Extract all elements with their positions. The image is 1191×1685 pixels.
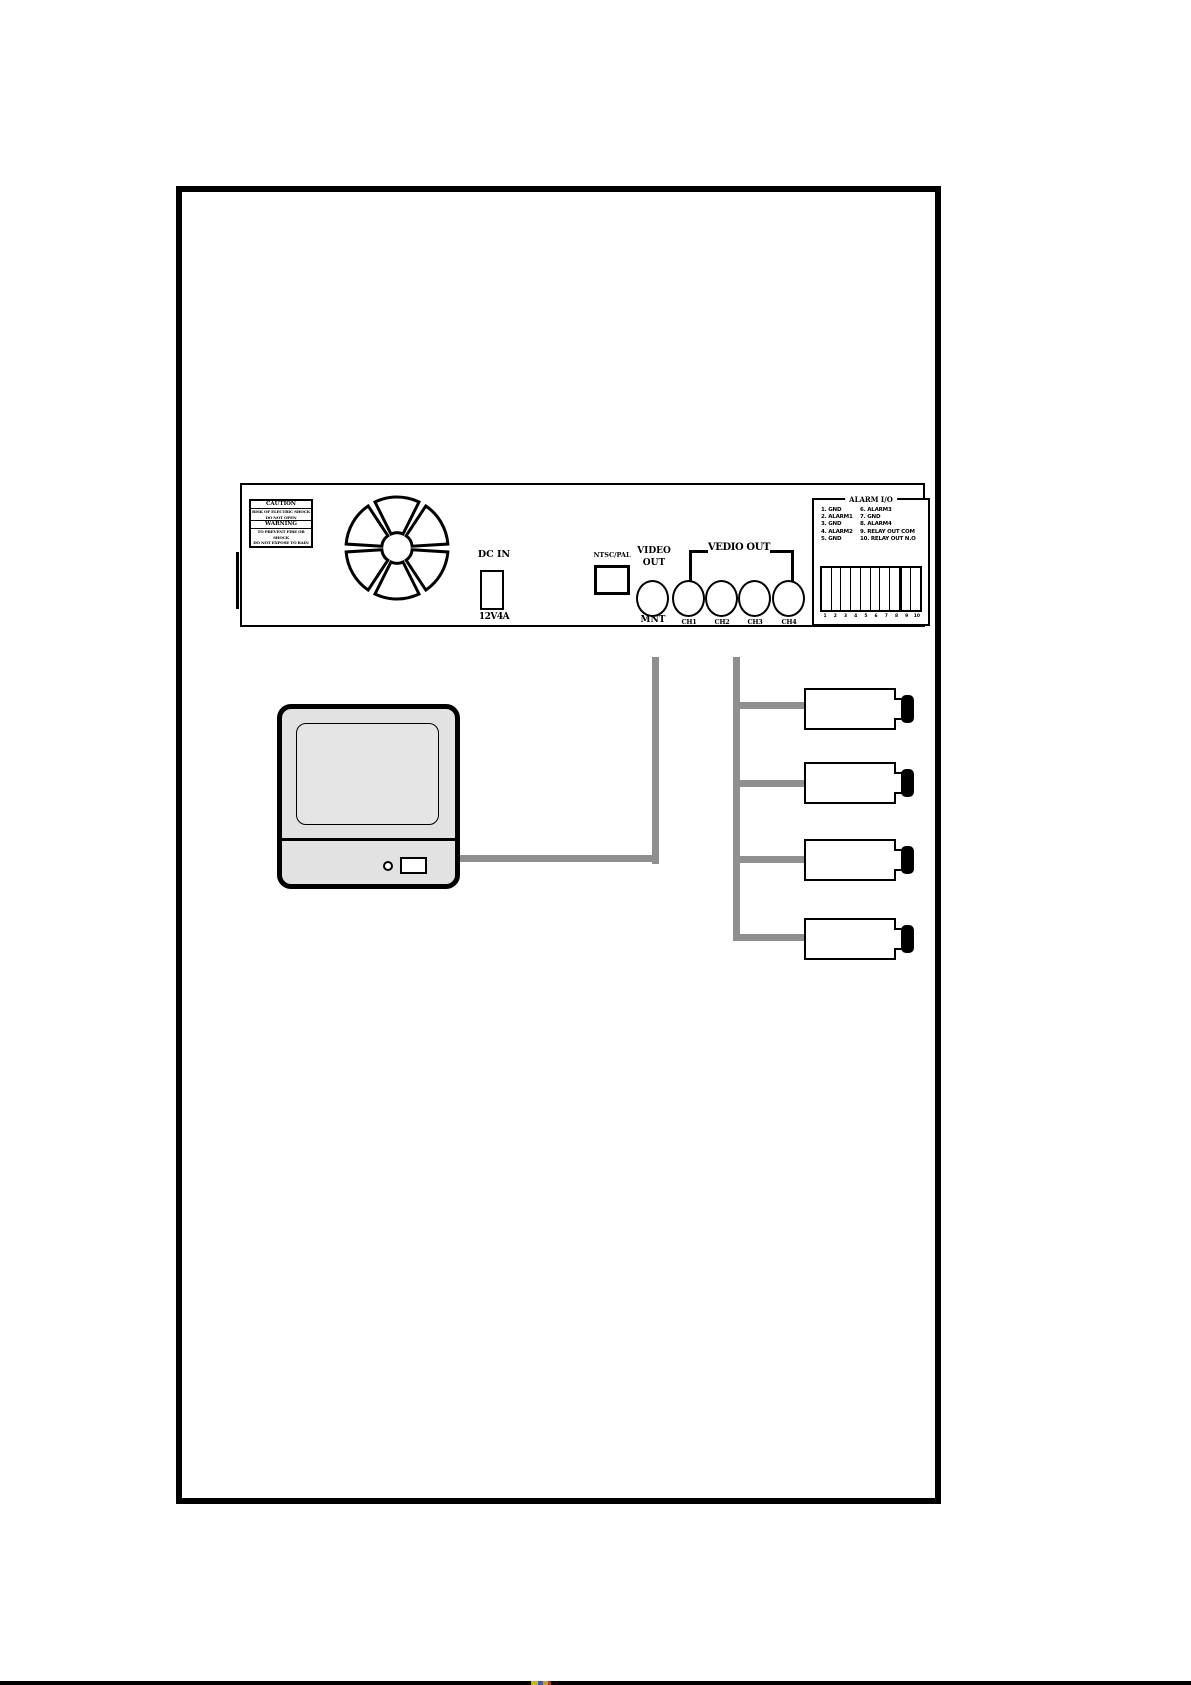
bracket-line (689, 550, 692, 581)
bnc-ch1 (672, 580, 705, 617)
caution-label: CAUTION RISK OF ELECTRIC SHOCK DO NOT OP… (249, 499, 313, 548)
monitor (277, 704, 460, 889)
ch3-label: CH3 (740, 618, 770, 626)
terminal-number: 3 (840, 614, 850, 619)
dc-in-label: DC IN (472, 549, 516, 560)
video-out-label: VIDEO OUT (633, 545, 675, 569)
alarm-io-title: ALARM I/O (845, 495, 897, 504)
fan-vent-icon (342, 493, 452, 603)
terminal-number: 2 (830, 614, 840, 619)
power-cord-mark (236, 552, 239, 609)
alarm-pin: 6. ALARM3 (860, 507, 916, 514)
warning-line: TO PREVENT FIRE OR SHOCK (251, 529, 311, 540)
scanned-manual-page: CAUTION RISK OF ELECTRIC SHOCK DO NOT OP… (0, 0, 1191, 1685)
monitor-cable-vertical (652, 657, 659, 864)
terminal-number: 7 (881, 614, 891, 619)
warning-title: WARNING (251, 520, 311, 529)
terminal-number: 9 (902, 614, 912, 619)
bracket-line (791, 550, 794, 581)
monitor-screen (296, 723, 439, 825)
camera2-cable (736, 780, 805, 787)
terminal-numbers: 1 2 3 4 5 6 7 8 9 10 (820, 614, 922, 619)
video-out-label-line1: VIDEO (633, 545, 675, 557)
camera-lens-icon (901, 695, 914, 723)
ch4-label: CH4 (774, 618, 804, 626)
terminal (902, 568, 912, 610)
ch2-label: CH2 (707, 618, 737, 626)
alarm-pin: 2. ALARM1 (821, 514, 853, 521)
caution-line: RISK OF ELECTRIC SHOCK (251, 509, 311, 515)
monitor-power-led (383, 861, 393, 871)
terminal (890, 568, 902, 610)
scan-edge-strip (0, 1681, 1191, 1685)
alarm-pin: 10. RELAY OUT N.O (860, 536, 916, 543)
terminal (880, 568, 890, 610)
dc-in-rating: 12V4A (470, 612, 518, 622)
camera1-cable (736, 702, 805, 709)
terminal-number: 1 (820, 614, 830, 619)
scan-artifact (548, 1681, 551, 1685)
alarm-pin-list-left: 1. GND 2. ALARM1 3. GND 4. ALARM2 5. GND (821, 507, 853, 543)
scan-artifact (531, 1681, 538, 1685)
camera-lens-icon (901, 846, 914, 874)
terminal (851, 568, 861, 610)
camera4-cable (736, 934, 805, 941)
camera-4 (804, 918, 896, 960)
warning-line: DO NOT EXPOSE TO RAIN (251, 540, 311, 546)
camera-3 (804, 839, 896, 881)
alarm-pin: 7. GND (860, 514, 916, 521)
alarm-pin: 9. RELAY OUT COM (860, 529, 916, 536)
terminal-number: 6 (871, 614, 881, 619)
camera-lens-icon (901, 769, 914, 797)
terminal-number: 5 (861, 614, 871, 619)
caution-title: CAUTION (251, 501, 311, 509)
alarm-io-block: ALARM I/O 1. GND 2. ALARM1 3. GND 4. ALA… (812, 498, 930, 626)
camera-lens-icon (901, 925, 914, 953)
monitor-cable-horizontal (460, 855, 659, 862)
terminal (871, 568, 881, 610)
terminal (832, 568, 842, 610)
terminal-block (820, 566, 922, 612)
terminal (822, 568, 832, 610)
terminal (861, 568, 871, 610)
dc-in-jack (480, 570, 504, 610)
mnt-label: MNT (632, 615, 674, 625)
alarm-pin: 5. GND (821, 536, 853, 543)
alarm-pin-list-right: 6. ALARM3 7. GND 8. ALARM4 9. RELAY OUT … (860, 507, 916, 543)
camera-trunk-cable (733, 657, 740, 941)
terminal (841, 568, 851, 610)
terminal (911, 568, 920, 610)
video-out-label-line2: OUT (633, 557, 675, 569)
bracket-line (770, 550, 793, 553)
terminal-number: 4 (851, 614, 861, 619)
alarm-pin: 1. GND (821, 507, 853, 514)
camera-2 (804, 762, 896, 804)
camera3-cable (736, 856, 805, 863)
bnc-ch3 (738, 580, 771, 617)
terminal-number: 10 (912, 614, 922, 619)
camera-1 (804, 688, 896, 730)
ntsc-pal-switch (594, 565, 630, 595)
monitor-button-panel (400, 857, 427, 874)
alarm-pin: 3. GND (821, 521, 853, 528)
bnc-monitor-out (636, 580, 669, 617)
alarm-pin: 8. ALARM4 (860, 521, 916, 528)
vedio-out-group-label: VEDIO OUT (699, 542, 779, 553)
ch1-label: CH1 (674, 618, 704, 626)
dvr-rear-panel: CAUTION RISK OF ELECTRIC SHOCK DO NOT OP… (240, 483, 925, 627)
bnc-ch2 (705, 580, 738, 617)
bnc-ch4 (772, 580, 805, 617)
terminal-number: 8 (891, 614, 901, 619)
alarm-pin: 4. ALARM2 (821, 529, 853, 536)
monitor-divider (281, 838, 457, 841)
